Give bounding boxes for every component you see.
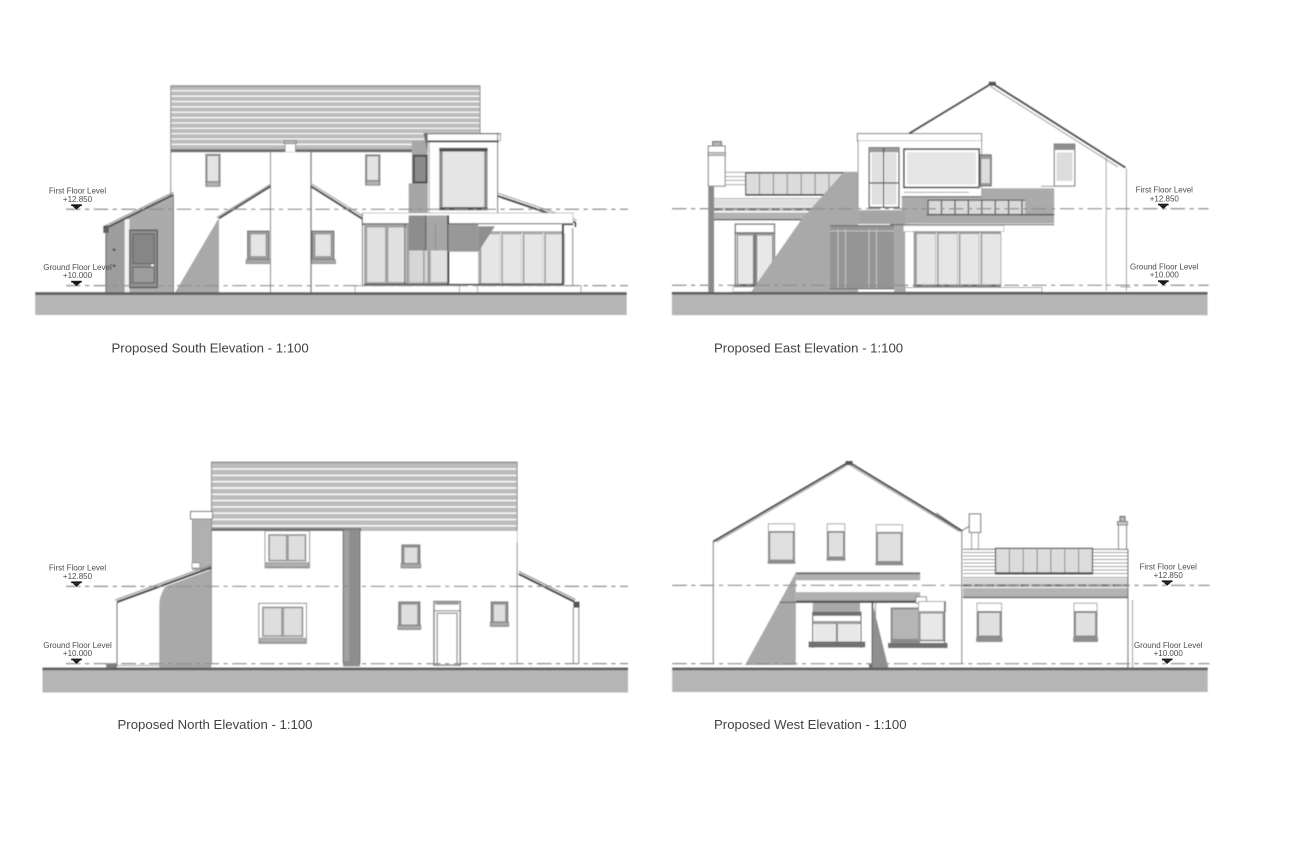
svg-text:First Floor Level: First Floor Level xyxy=(49,563,107,572)
svg-text:Proposed South Elevation - 1:1: Proposed South Elevation - 1:100 xyxy=(112,340,309,355)
svg-text:+10.000: +10.000 xyxy=(63,271,93,280)
svg-text:+12.850: +12.850 xyxy=(63,572,93,581)
svg-text:+12.850: +12.850 xyxy=(1154,571,1184,580)
svg-text:Proposed North Elevation - 1:1: Proposed North Elevation - 1:100 xyxy=(118,717,313,732)
svg-text:+10.000: +10.000 xyxy=(1150,271,1180,280)
svg-text:Proposed East Elevation - 1:10: Proposed East Elevation - 1:100 xyxy=(714,340,903,355)
svg-text:+10.000: +10.000 xyxy=(63,649,93,658)
svg-text:First Floor Level: First Floor Level xyxy=(49,186,107,195)
svg-text:+12.850: +12.850 xyxy=(1150,195,1180,204)
svg-text:Proposed West Elevation - 1:10: Proposed West Elevation - 1:100 xyxy=(714,717,907,732)
svg-text:+12.850: +12.850 xyxy=(63,195,93,204)
svg-text:First Floor Level: First Floor Level xyxy=(1140,562,1198,571)
svg-text:First Floor Level: First Floor Level xyxy=(1136,186,1194,195)
svg-text:+10.000: +10.000 xyxy=(1154,649,1184,658)
